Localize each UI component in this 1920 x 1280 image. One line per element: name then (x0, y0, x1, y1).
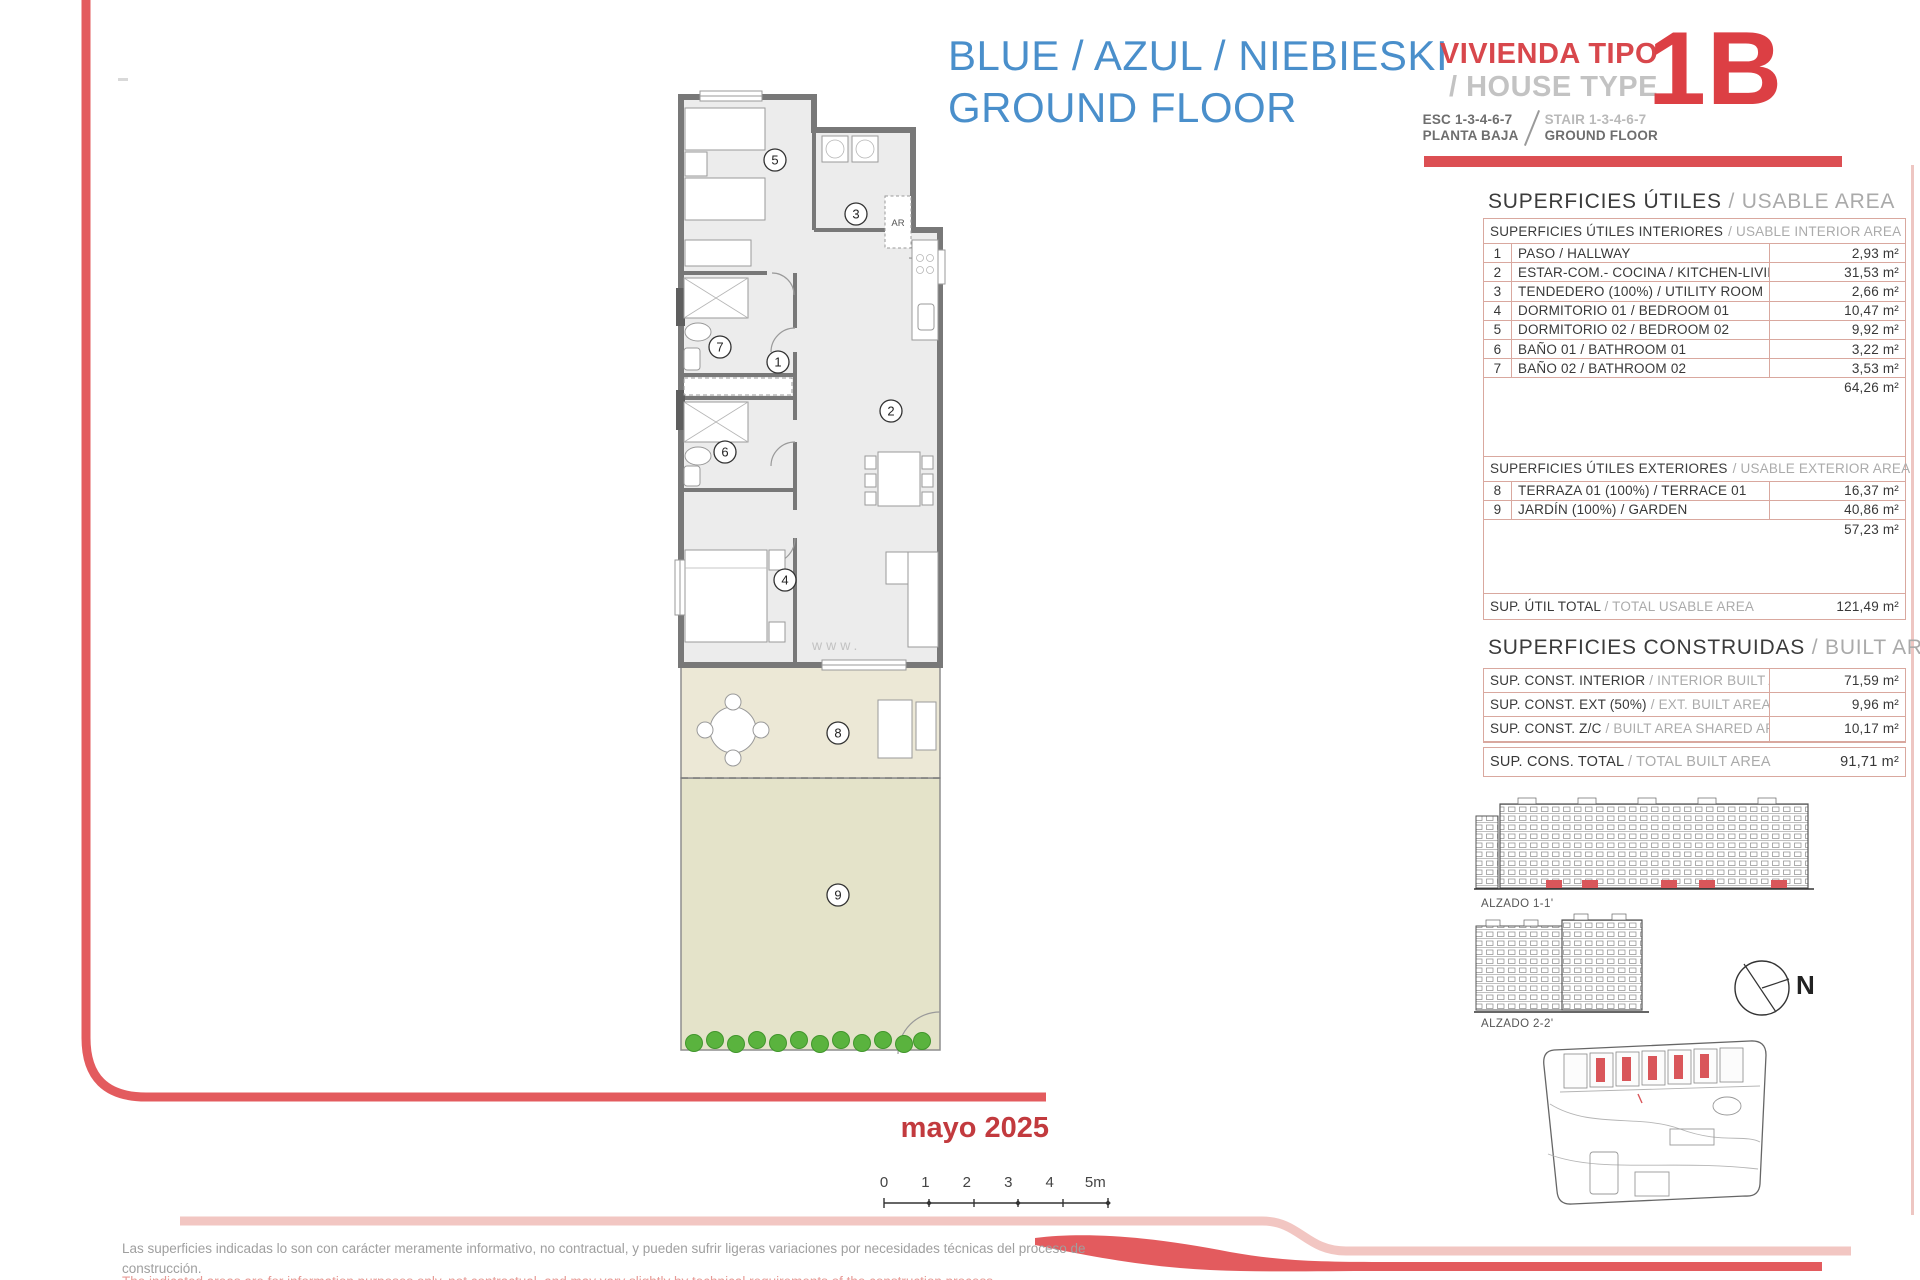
usable-area-title: SUPERFICIES ÚTILES / USABLE AREA (1488, 190, 1908, 214)
page-title: BLUE / AZUL / NIEBIESKI GROUND FLOOR (948, 30, 1448, 134)
area-row: 3 TENDEDERO (100%) / UTILITY ROOM 2,66 m… (1484, 282, 1905, 301)
plan-sheet: BLUE / AZUL / NIEBIESKI GROUND FLOOR VIV… (0, 0, 1920, 1280)
watermark: www. (811, 637, 861, 653)
area-row: 6 BAÑO 01 / BATHROOM 01 3,22 m² (1484, 340, 1905, 359)
area-row: 9 JARDÍN (100%) / GARDEN 40,86 m² (1484, 501, 1905, 520)
row-value: 3,53 m² (1769, 359, 1905, 377)
scale-tick-label: 1 (921, 1174, 929, 1191)
unit-code: 1B (1648, 10, 1783, 129)
built-total-value: 91,71 m² (1771, 748, 1905, 776)
disclaimer-en: The indicated areas are for information … (122, 1272, 1122, 1280)
planta-baja-label: PLANTA BAJA (1423, 128, 1519, 144)
built-total-row: SUP. CONS. TOTAL / TOTAL BUILT AREA 91,7… (1484, 748, 1905, 776)
row-value: 16,37 m² (1769, 482, 1905, 500)
built-row: SUP. CONST. Z/C / BUILT AREA SHARED AREA… (1484, 717, 1905, 741)
built-row-label-en: / EXT. BUILT AREA (1651, 697, 1769, 712)
house-type-block: VIVIENDA TIPO / HOUSE TYPE ESC 1-3-4-6-7… (1420, 38, 1658, 147)
area-row: 7 BAÑO 02 / BATHROOM 02 3,53 m² (1484, 359, 1905, 378)
north-compass (1722, 952, 1832, 1027)
row-description: DORMITORIO 01 / BEDROOM 01 (1512, 303, 1769, 318)
linen-closet (684, 378, 792, 395)
built-row-label-en: / BUILT AREA SHARED AREAS (1605, 721, 1769, 736)
row-description: ESTAR-COM.- COCINA / KITCHEN-LIVING (1512, 265, 1769, 280)
floor-plan: www. 5 3 7 1 2 6 4 8 9 AR (672, 90, 992, 1070)
stair-column: STAIR 1-3-4-6-7 GROUND FLOOR (1545, 112, 1658, 144)
row-number: 6 (1484, 340, 1512, 358)
row-value: 31,53 m² (1769, 263, 1905, 281)
built-total-label-es: SUP. CONS. TOTAL (1490, 754, 1624, 770)
interior-rows: 1 PASO / HALLWAY 2,93 m² 2 ESTAR-COM.- C… (1484, 244, 1905, 378)
ground-floor-label: GROUND FLOOR (1545, 128, 1658, 144)
label-bedroom02: 5 (771, 153, 778, 168)
row-description: JARDÍN (100%) / GARDEN (1512, 502, 1769, 517)
scale-tick-label: 4 (1046, 1174, 1054, 1191)
row-value: 2,66 m² (1769, 282, 1905, 300)
elevation-1-label: ALZADO 1-1' (1481, 898, 1553, 910)
label-garden: 9 (834, 888, 841, 903)
area-row: 4 DORMITORIO 01 / BEDROOM 01 10,47 m² (1484, 302, 1905, 321)
row-value: 2,93 m² (1769, 244, 1905, 262)
row-description: TERRAZA 01 (100%) / TERRACE 01 (1512, 483, 1769, 498)
esc-label: ESC 1-3-4-6-7 (1423, 112, 1519, 128)
esc-column: ESC 1-3-4-6-7 PLANTA BAJA (1423, 112, 1519, 144)
title-red-underline (1424, 156, 1842, 167)
elevation-2-label: ALZADO 2-2' (1481, 1018, 1553, 1030)
area-row: 2 ESTAR-COM.- COCINA / KITCHEN-LIVING 31… (1484, 263, 1905, 282)
interior-section-header: SUPERFICIES ÚTILES INTERIORES / USABLE I… (1484, 219, 1905, 244)
built-total-label-en: / TOTAL BUILT AREA (1628, 754, 1771, 770)
built-area-title: SUPERFICIES CONSTRUIDAS / BUILT AREA (1488, 636, 1908, 660)
north-label: N (1796, 970, 1815, 1001)
usable-total-label-en: / TOTAL USABLE AREA (1605, 599, 1755, 614)
row-value: 40,86 m² (1769, 501, 1905, 519)
house-type-label: / HOUSE TYPE (1420, 71, 1658, 104)
row-number: 7 (1484, 359, 1512, 377)
row-number: 1 (1484, 244, 1512, 262)
exterior-subtotal-value: 57,23 m² (1769, 520, 1905, 539)
built-row-label-es: SUP. CONST. EXT (50%) (1490, 697, 1647, 712)
scale-tick-label: 3 (1004, 1174, 1012, 1191)
disclaimer-es-line1: Las superficies indicadas lo son con car… (122, 1239, 1122, 1259)
row-description: PASO / HALLWAY (1512, 246, 1769, 261)
row-description: DORMITORIO 02 / BEDROOM 02 (1512, 322, 1769, 337)
scale-tick-label: 2 (963, 1174, 971, 1191)
stair-label: STAIR 1-3-4-6-7 (1545, 112, 1658, 128)
scale-tick-label: 0 (880, 1174, 888, 1191)
elevation-2-drawing (1474, 912, 1674, 1020)
row-description: BAÑO 01 / BATHROOM 01 (1512, 342, 1769, 357)
row-number: 9 (1484, 501, 1512, 519)
row-description: TENDEDERO (100%) / UTILITY ROOM (1512, 284, 1769, 299)
area-row: 1 PASO / HALLWAY 2,93 m² (1484, 244, 1905, 263)
label-bathroom01: 6 (721, 445, 728, 460)
usable-total-value: 121,49 m² (1769, 594, 1905, 619)
scale-bar-numbers: 012345m (884, 1174, 1112, 1191)
stair-floor-info: ESC 1-3-4-6-7 PLANTA BAJA STAIR 1-3-4-6-… (1420, 109, 1658, 147)
page-title-line2: GROUND FLOOR (948, 82, 1448, 134)
built-total-box: SUP. CONS. TOTAL / TOTAL BUILT AREA 91,7… (1483, 747, 1906, 777)
garden-area (681, 778, 940, 1050)
built-row: SUP. CONST. EXT (50%) / EXT. BUILT AREA … (1484, 693, 1905, 717)
corner-mark (118, 78, 128, 81)
built-row: SUP. CONST. INTERIOR / INTERIOR BUILT AR… (1484, 669, 1905, 693)
label-kitchen-living: 2 (887, 404, 894, 419)
area-row: 5 DORMITORIO 02 / BEDROOM 02 9,92 m² (1484, 321, 1905, 340)
label-storage-ar: AR (891, 218, 904, 229)
row-value: 10,47 m² (1769, 302, 1905, 320)
slash-divider (1524, 110, 1540, 146)
row-value: 9,92 m² (1769, 321, 1905, 339)
interior-subtotal-value: 64,26 m² (1769, 378, 1905, 397)
elevation-1-drawing (1474, 796, 1819, 896)
date-label: mayo 2025 (849, 1112, 1049, 1145)
site-plan (1520, 1034, 1790, 1264)
row-description: BAÑO 02 / BATHROOM 02 (1512, 361, 1769, 376)
built-row-label-es: SUP. CONST. INTERIOR (1490, 673, 1645, 688)
exterior-rows: 8 TERRAZA 01 (100%) / TERRACE 01 16,37 m… (1484, 482, 1905, 520)
page-title-line1: BLUE / AZUL / NIEBIESKI (948, 30, 1448, 82)
usable-area-table: SUPERFICIES ÚTILES INTERIORES / USABLE I… (1483, 218, 1906, 620)
built-rows: SUP. CONST. INTERIOR / INTERIOR BUILT AR… (1484, 669, 1905, 742)
built-row-value: 71,59 m² (1769, 669, 1905, 692)
area-row: 8 TERRAZA 01 (100%) / TERRACE 01 16,37 m… (1484, 482, 1905, 501)
label-terrace: 8 (834, 726, 841, 741)
row-number: 2 (1484, 263, 1512, 281)
row-number: 3 (1484, 282, 1512, 300)
row-number: 5 (1484, 321, 1512, 339)
row-number: 8 (1484, 482, 1512, 500)
scale-bar (882, 1196, 1116, 1210)
built-area-title-es: SUPERFICIES CONSTRUIDAS (1488, 636, 1805, 659)
scale-tick-label: 5m (1085, 1174, 1106, 1191)
row-number: 4 (1484, 302, 1512, 320)
label-bedroom01: 4 (781, 573, 788, 588)
label-hallway: 1 (774, 355, 781, 370)
label-utility: 3 (852, 207, 859, 222)
built-row-label-es: SUP. CONST. Z/C (1490, 721, 1602, 736)
interior-subtotal-row: 64,26 m² (1484, 378, 1905, 397)
built-row-value: 10,17 m² (1769, 717, 1905, 740)
built-area-title-en: / BUILT AREA (1812, 636, 1920, 659)
usable-area-title-es: SUPERFICIES ÚTILES (1488, 190, 1722, 213)
usable-area-title-en: / USABLE AREA (1728, 190, 1895, 213)
built-row-label-en: / INTERIOR BUILT AREA (1649, 673, 1769, 688)
usable-total-row: SUP. ÚTIL TOTAL / TOTAL USABLE AREA 121,… (1484, 593, 1905, 619)
usable-total-label-es: SUP. ÚTIL TOTAL (1490, 599, 1601, 614)
built-area-table: SUP. CONST. INTERIOR / INTERIOR BUILT AR… (1483, 668, 1906, 743)
exterior-section-header: SUPERFICIES ÚTILES EXTERIORES / USABLE E… (1484, 456, 1905, 482)
vivienda-tipo-label: VIVIENDA TIPO (1420, 38, 1658, 71)
exterior-subtotal-row: 57,23 m² (1484, 520, 1905, 539)
built-row-value: 9,96 m² (1769, 693, 1905, 716)
row-value: 3,22 m² (1769, 340, 1905, 358)
right-pink-border (1911, 165, 1914, 1215)
label-bathroom02: 7 (716, 340, 723, 355)
